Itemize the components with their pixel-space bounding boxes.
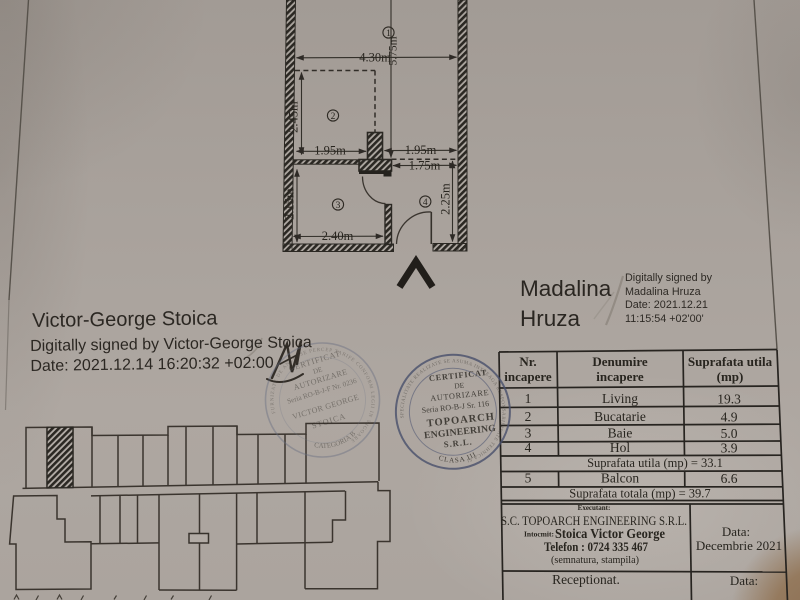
svg-text:4.30m: 4.30m xyxy=(359,51,391,65)
svg-text:Intocmit:: Intocmit: xyxy=(524,530,554,539)
svg-text:19.3: 19.3 xyxy=(717,392,741,407)
svg-text:incapere: incapere xyxy=(504,369,552,384)
svg-text:4: 4 xyxy=(525,440,532,455)
svg-text:Balcon: Balcon xyxy=(601,471,639,486)
svg-text:(mp): (mp) xyxy=(717,369,744,384)
svg-text:6.6: 6.6 xyxy=(721,471,738,486)
svg-text:Suprafata utila: Suprafata utila xyxy=(688,354,773,369)
svg-text:2.45m: 2.45m xyxy=(287,101,301,133)
svg-text:2.25m: 2.25m xyxy=(439,183,453,215)
svg-text:S.R.L.: S.R.L. xyxy=(443,436,473,449)
svg-text:Suprafata utila (mp) = 33.1: Suprafata utila (mp) = 33.1 xyxy=(587,456,723,470)
svg-text:Receptionat.: Receptionat. xyxy=(552,572,620,587)
svg-text:2.40m: 2.40m xyxy=(322,229,354,243)
svg-text:1.75m: 1.75m xyxy=(409,158,441,172)
svg-text:1: 1 xyxy=(525,391,532,406)
svg-text:Data:: Data: xyxy=(730,573,758,588)
svg-text:1.95m: 1.95m xyxy=(314,144,346,158)
svg-text:DE: DE xyxy=(454,380,465,390)
svg-text:3.9: 3.9 xyxy=(721,441,738,456)
svg-text:Suprafata totala (mp) = 39.7: Suprafata totala (mp) = 39.7 xyxy=(569,487,710,501)
svg-text:Executant:: Executant: xyxy=(578,504,611,512)
svg-text:Nr.: Nr. xyxy=(519,354,536,369)
svg-text:Hol: Hol xyxy=(610,440,630,455)
svg-text:Denumire: Denumire xyxy=(592,354,648,369)
svg-text:incapere: incapere xyxy=(596,369,644,384)
svg-text:5: 5 xyxy=(525,471,532,486)
svg-text:1.95m: 1.95m xyxy=(405,143,437,157)
svg-text:1: 1 xyxy=(386,29,391,39)
svg-text:CLASA III: CLASA III xyxy=(437,450,479,466)
svg-text:4: 4 xyxy=(423,198,428,208)
svg-text:3: 3 xyxy=(525,426,532,441)
svg-text:Bucatarie: Bucatarie xyxy=(594,409,646,424)
svg-text:2: 2 xyxy=(525,409,532,424)
svg-text:5.75m: 5.75m xyxy=(388,36,400,65)
svg-text:Decembrie 2021: Decembrie 2021 xyxy=(696,538,782,553)
svg-text:5.0: 5.0 xyxy=(721,426,738,441)
svg-text:2.15m: 2.15m xyxy=(283,188,297,220)
svg-text:Data:: Data: xyxy=(722,524,750,539)
svg-text:3: 3 xyxy=(336,201,341,211)
svg-text:2: 2 xyxy=(331,112,336,122)
svg-text:Living: Living xyxy=(602,391,638,406)
svg-text:S.C. TOPOARCH ENGINEERING S.R.: S.C. TOPOARCH ENGINEERING S.R.L. xyxy=(501,513,687,528)
svg-text:4.9: 4.9 xyxy=(721,410,738,425)
svg-text:Baie: Baie xyxy=(608,426,633,441)
svg-text:Telefon : 0724 335 467: Telefon : 0724 335 467 xyxy=(544,539,648,554)
svg-text:(semnatura, stampila): (semnatura, stampila) xyxy=(551,554,639,566)
